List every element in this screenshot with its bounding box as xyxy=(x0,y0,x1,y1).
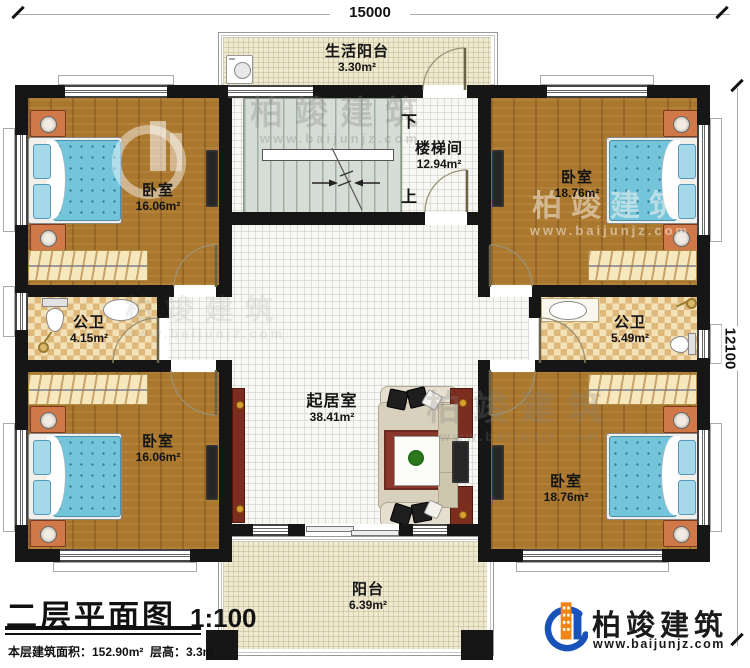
door-arc xyxy=(490,245,532,287)
door-arc xyxy=(540,318,585,363)
logo-building-blue xyxy=(574,612,582,639)
room-area: 18.76m² xyxy=(537,187,617,200)
door-arc xyxy=(171,370,216,415)
dimension-right-value: 12100 xyxy=(722,327,739,371)
door-arc xyxy=(423,48,465,90)
room-name: 楼梯间 xyxy=(398,141,480,158)
room-area: 6.39m² xyxy=(328,599,408,612)
room-name: 公卫 xyxy=(590,315,670,332)
title-rule xyxy=(5,633,201,635)
room-area: 4.15m² xyxy=(49,332,129,345)
floor-plan: 生活阳台 3.30m² 下 楼梯间 12.94m² 上 卧室 16.06m² 卧… xyxy=(0,0,750,668)
room-name: 卧室 xyxy=(526,474,606,491)
room-label-bath-left: 公卫 4.15m² xyxy=(49,315,129,345)
logo-building-orange xyxy=(561,602,572,639)
title-rule xyxy=(5,626,201,630)
door-arc xyxy=(425,170,467,212)
room-label-living-room: 起居室 38.41m² xyxy=(288,393,376,424)
dimension-top-value: 15000 xyxy=(330,4,410,21)
door-arc xyxy=(174,245,216,287)
room-area: 16.06m² xyxy=(118,200,198,213)
room-area: 5.49m² xyxy=(590,332,670,345)
room-area: 3.30m² xyxy=(307,61,407,74)
stair-break-mark xyxy=(312,148,380,210)
room-area: 16.06m² xyxy=(118,451,198,464)
room-label-balcony: 阳台 6.39m² xyxy=(328,582,408,612)
room-label-bedroom-bottom-right: 卧室 18.76m² xyxy=(526,474,606,504)
brand-url: www.baijunjz.com xyxy=(593,637,725,651)
stair-down-label: 下 xyxy=(396,108,422,132)
door-arc xyxy=(490,370,535,415)
room-name: 公卫 xyxy=(49,315,129,332)
room-label-stairwell: 楼梯间 12.94m² xyxy=(398,141,480,171)
room-name: 生活阳台 xyxy=(307,44,407,61)
room-area: 12.94m² xyxy=(398,158,480,171)
stair-up-label: 上 xyxy=(396,183,422,207)
room-name: 卧室 xyxy=(118,434,198,451)
room-label-bath-right: 公卫 5.49m² xyxy=(590,315,670,345)
floor-height-label: 层高：3.3m xyxy=(150,643,213,660)
room-label-bedroom-top-left: 卧室 16.06m² xyxy=(118,183,198,213)
room-name: 卧室 xyxy=(118,183,198,200)
room-name: 起居室 xyxy=(288,393,376,411)
room-name: 阳台 xyxy=(328,582,408,599)
room-area: 18.76m² xyxy=(526,491,606,504)
brand-logo-icon xyxy=(542,598,588,658)
room-label-bedroom-bottom-left: 卧室 16.06m² xyxy=(118,434,198,464)
room-name: 卧室 xyxy=(537,170,617,187)
room-area: 38.41m² xyxy=(288,411,376,424)
room-label-life-balcony: 生活阳台 3.30m² xyxy=(307,44,407,74)
floor-area-label: 本层建筑面积：152.90m² xyxy=(8,643,143,660)
room-label-bedroom-top-right: 卧室 18.76m² xyxy=(537,170,617,200)
